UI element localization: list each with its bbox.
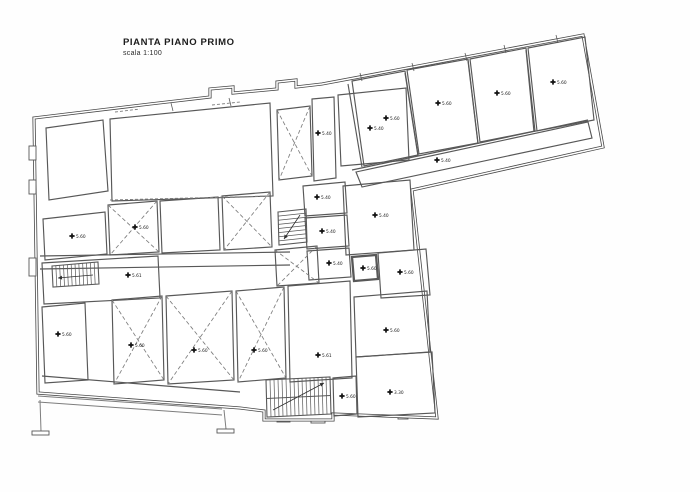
elevation-value: 5.60: [442, 101, 452, 107]
elevation-value: 5.60: [390, 328, 400, 334]
elevation-value: 5.60: [135, 343, 145, 349]
outer-wall: [34, 35, 603, 420]
elevation-value: 5.61: [322, 353, 332, 359]
elevation-value: 5.60: [139, 225, 149, 231]
window-bay: [29, 180, 36, 194]
elevation-value: 5.40: [374, 126, 384, 132]
elevation-value: 5.40: [379, 213, 389, 219]
elevation-value: 5.40: [322, 131, 332, 137]
terrace-railing: [40, 400, 41, 431]
floor-plan-page: PIANTA PIANO PRIMO scala 1:100 5.405.405…: [0, 0, 700, 492]
elevation-value: 5.60: [198, 348, 208, 354]
window-bay: [29, 258, 36, 276]
elevation-value: 5.60: [404, 270, 414, 276]
elevation-value: 5.60: [501, 91, 511, 97]
terrace-pier: [217, 429, 234, 433]
window-bay: [29, 146, 36, 160]
floor-plan-drawing: 5.405.405.405.605.605.405.405.405.605.60…: [0, 0, 700, 492]
elevation-value: 5.60: [76, 234, 86, 240]
terrace-railing: [224, 410, 226, 429]
elevation-value: 5.60: [346, 394, 356, 400]
terrace-pier: [32, 431, 49, 435]
elevation-value: 5.40: [441, 158, 451, 164]
elevation-value: 5.60: [557, 80, 567, 86]
elevation-value: 3.30: [394, 390, 404, 396]
elevation-value: 5.60: [62, 332, 72, 338]
elevation-value: 5.60: [390, 116, 400, 122]
elevation-value: 5.61: [132, 273, 142, 279]
elevation-value: 5.40: [326, 229, 336, 235]
elevation-value: 5.60: [258, 348, 268, 354]
elevation-value: 5.40: [321, 195, 331, 201]
elevation-value: 5.40: [333, 261, 343, 267]
elevation-value: 5.60: [367, 266, 377, 272]
